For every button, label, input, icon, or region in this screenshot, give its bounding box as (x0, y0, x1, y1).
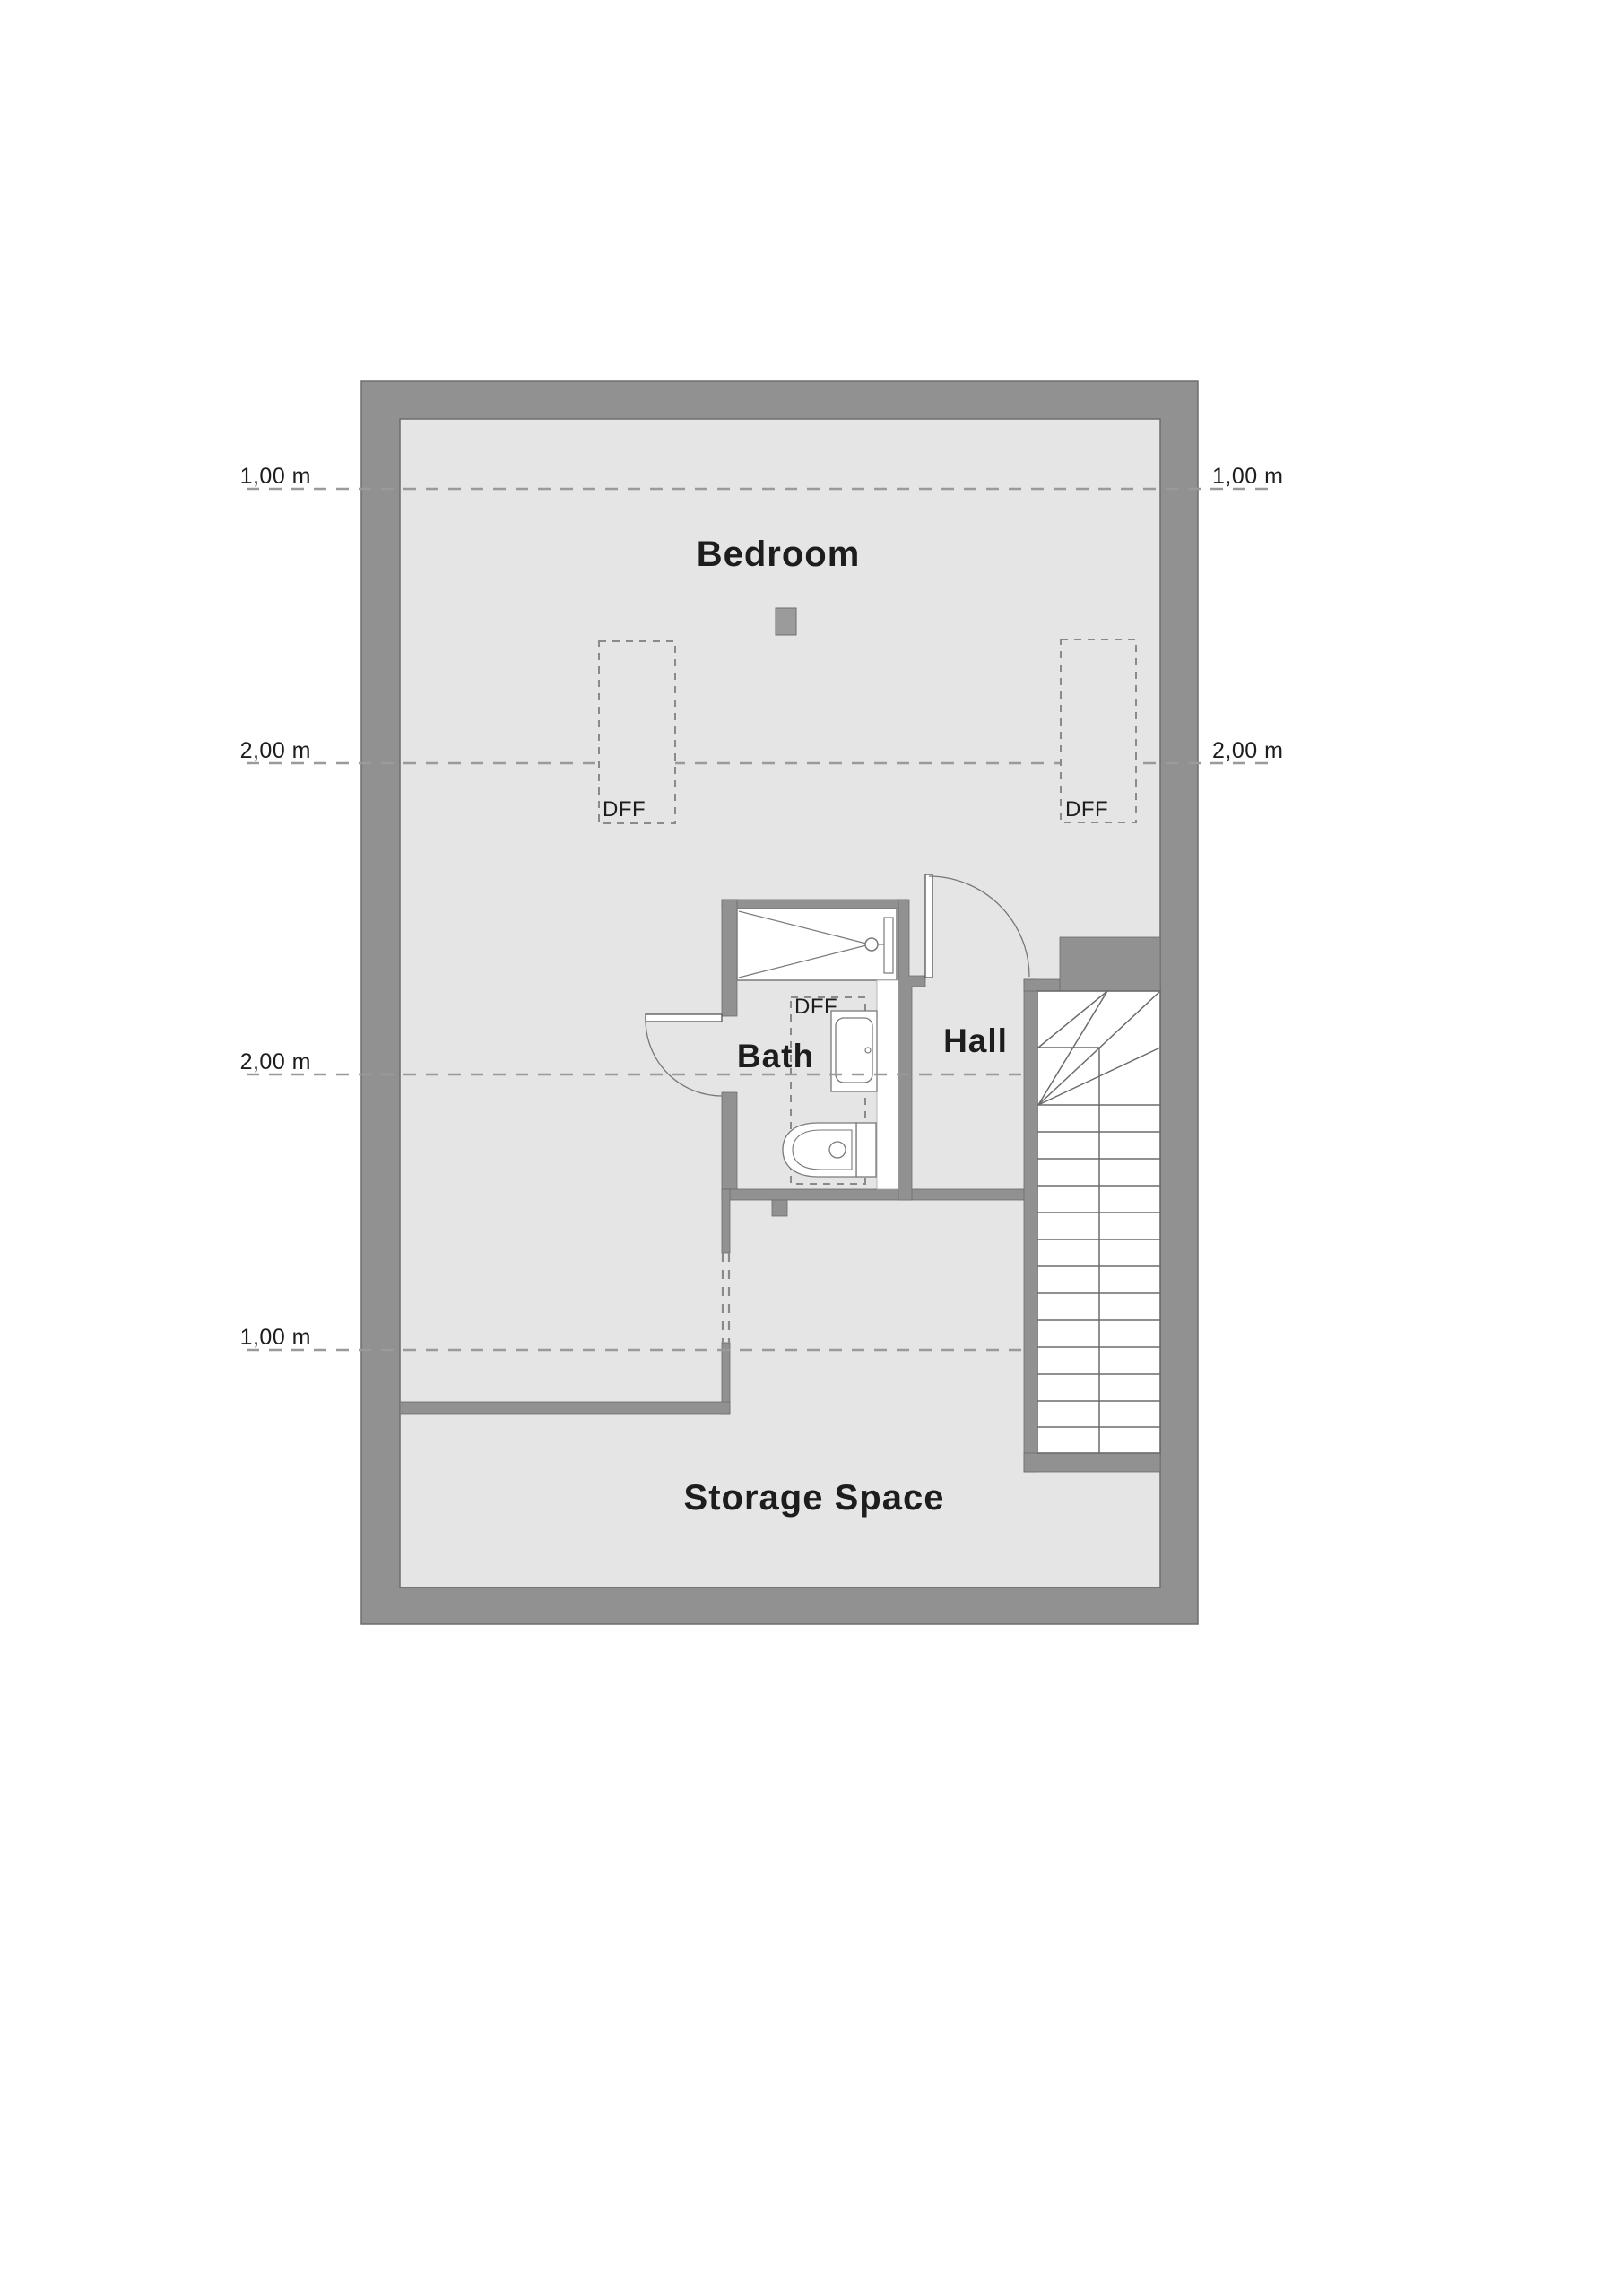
bath-wall-left-upper (722, 900, 737, 1016)
floorplan-drawing: BedroomBathHallStorage SpaceDFFDFFDFF1,0… (0, 0, 1622, 2296)
toilet-tank (856, 1123, 876, 1177)
bath-hall-wall-bottom (722, 1189, 1037, 1200)
stair-wall-top-block (1060, 937, 1160, 991)
wall-tab (772, 1200, 787, 1216)
dff-skylight-right (1061, 639, 1136, 822)
dff-label-bath: DFF (794, 995, 837, 1019)
plumbing-duct (877, 980, 898, 1189)
storage-wall-vertical-upper (722, 1189, 730, 1253)
shower-head (865, 938, 878, 951)
dim-label-2-left: 2,00 m (240, 738, 311, 763)
floorplan-page: BedroomBathHallStorage SpaceDFFDFFDFF1,0… (0, 0, 1622, 2296)
dim-label-3-left: 2,00 m (240, 1049, 311, 1074)
hall-door-leaf (925, 874, 932, 978)
dff-skylight-left (599, 641, 675, 823)
bath-door-leaf (646, 1014, 722, 1022)
bath-wall-left-lower (722, 1092, 737, 1189)
sink-tap (865, 1048, 871, 1053)
dff-label-right: DFF (1065, 797, 1108, 822)
dim-label-2-right: 2,00 m (1212, 738, 1283, 763)
chimney (776, 608, 796, 635)
dim-label-4-left: 1,00 m (240, 1325, 311, 1350)
dim-label-1-left: 1,00 m (240, 464, 311, 489)
shower-panel (884, 918, 893, 973)
stair-wall-bottom (1024, 1453, 1160, 1472)
dim-label-1-right: 1,00 m (1212, 464, 1283, 489)
room-label-storage: Storage Space (684, 1478, 945, 1518)
storage-wall-horizontal (400, 1402, 730, 1414)
stair-wall-left (1024, 979, 1037, 1472)
room-label-bath: Bath (737, 1038, 814, 1074)
room-label-bedroom: Bedroom (697, 535, 861, 574)
dff-label-left: DFF (603, 797, 646, 822)
bath-wall-top (722, 900, 907, 909)
room-label-hall: Hall (943, 1022, 1008, 1059)
stair-wall-top-thin (1024, 979, 1060, 991)
toilet-flush (829, 1142, 846, 1158)
